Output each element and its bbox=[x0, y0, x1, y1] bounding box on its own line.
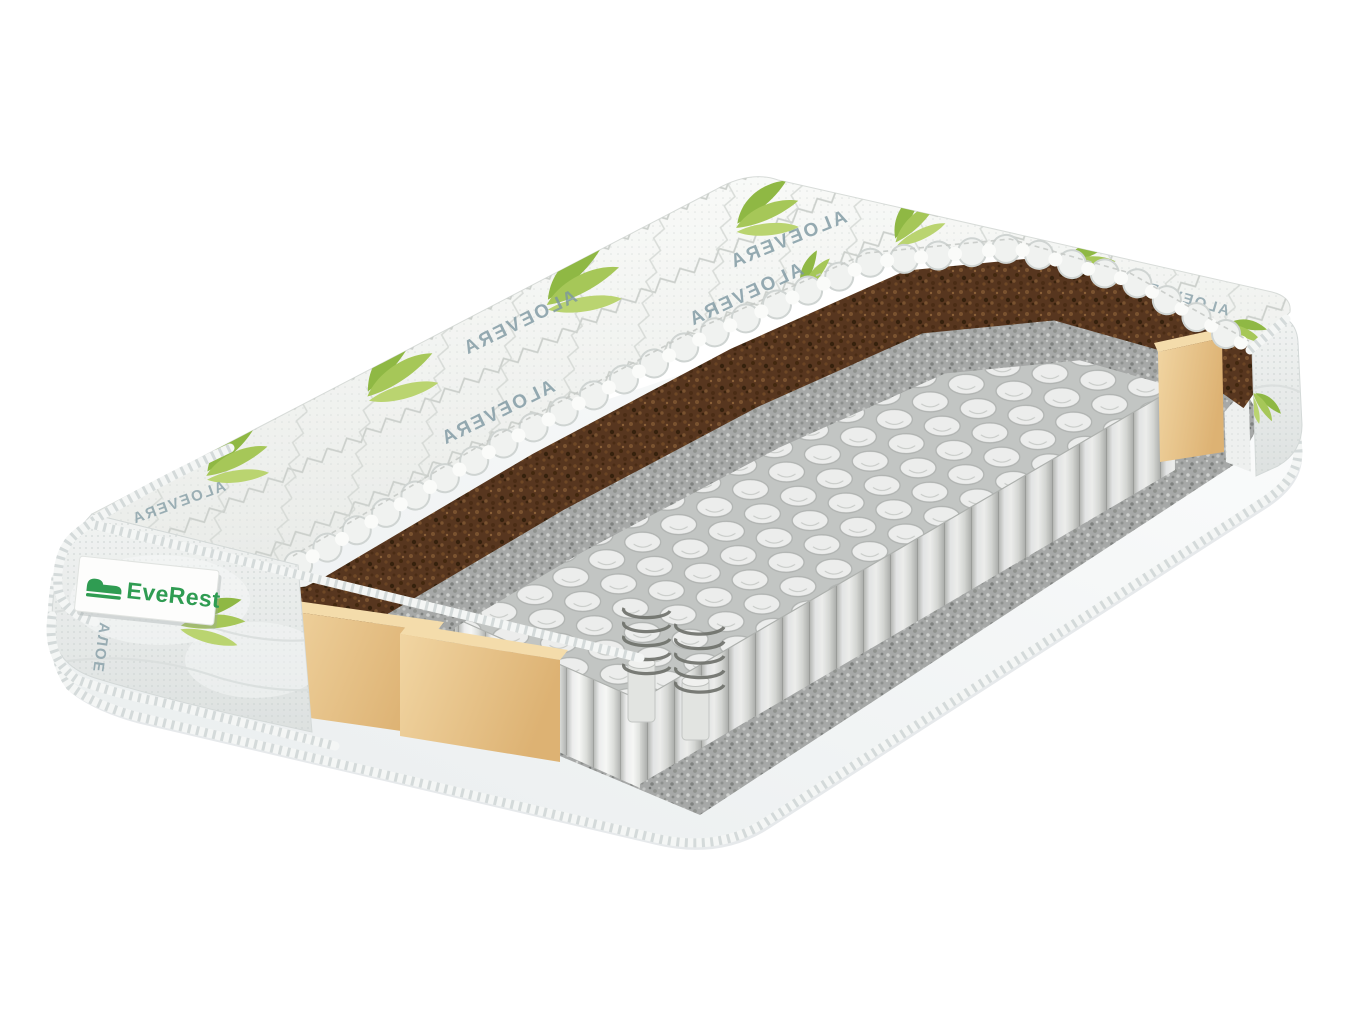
product-photo-mattress-cutaway: ALOEVERA ALOEVERA ALOEVERA ALOEVERA ALOE… bbox=[0, 0, 1350, 1013]
foam-edge-block bbox=[1154, 329, 1224, 462]
